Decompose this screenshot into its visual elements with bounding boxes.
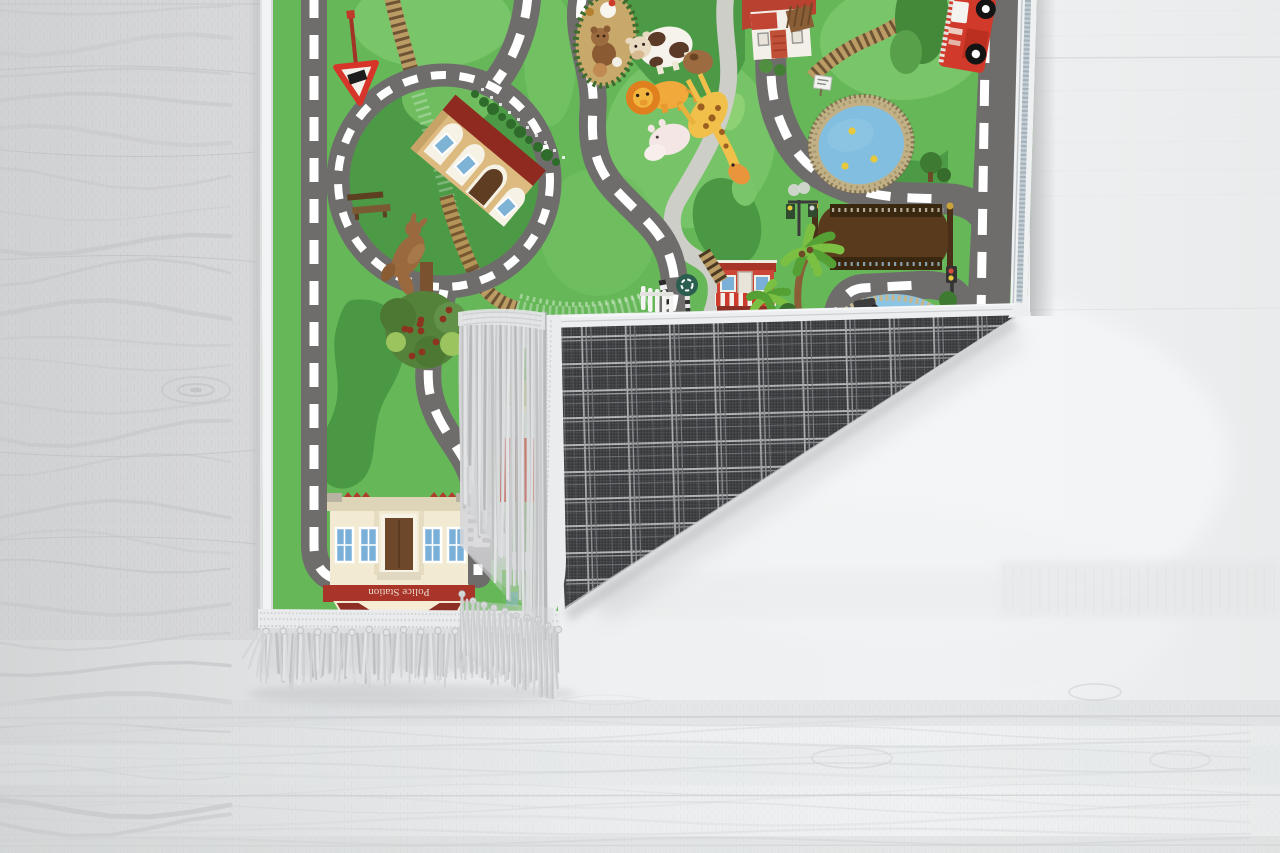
svg-text:Police Station: Police Station bbox=[368, 586, 430, 598]
